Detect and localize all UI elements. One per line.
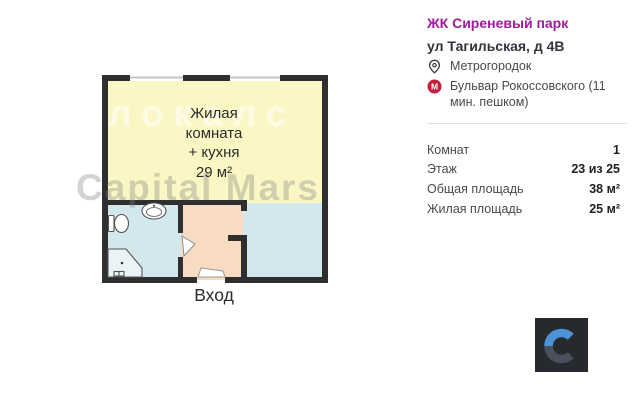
- listing-card: локалс Capital Mars Жилая комната + кухн…: [0, 0, 640, 405]
- row-value: 38 м²: [589, 182, 620, 196]
- svg-text:М: М: [431, 82, 438, 92]
- room-label-line2: комната: [134, 124, 294, 144]
- table-row: Жилая площадь 25 м²: [427, 199, 620, 219]
- row-value: 23 из 25: [571, 162, 620, 176]
- room-label-line3: + кухня: [134, 143, 294, 163]
- table-row: Комнат 1: [427, 140, 620, 160]
- metro-row: М Бульвар Рокоссовского (11 мин. пешком): [427, 79, 622, 110]
- district-row: Метрогородок: [427, 59, 622, 75]
- entrance-label: Вход: [164, 285, 264, 306]
- address-text: ул Тагильская, д 4В: [427, 38, 565, 54]
- divider: [427, 123, 627, 124]
- table-row: Общая площадь 38 м²: [427, 179, 620, 199]
- row-value: 25 м²: [589, 202, 620, 216]
- row-label: Жилая площадь: [427, 202, 522, 216]
- district-text: Метрогородок: [450, 59, 622, 75]
- agency-logo[interactable]: [535, 318, 588, 372]
- room-label: Жилая комната + кухня 29 м²: [134, 104, 294, 182]
- toilet-icon: [109, 216, 115, 232]
- row-value: 1: [613, 143, 620, 157]
- spec-table: Комнат 1 Этаж 23 из 25 Общая площадь 38 …: [427, 140, 620, 218]
- right-room-area: [243, 203, 325, 280]
- metro-station-text: Бульвар Рокоссовского (11 мин. пешком): [450, 79, 622, 110]
- logo-c-icon: [535, 318, 588, 372]
- row-label: Комнат: [427, 143, 469, 157]
- table-row: Этаж 23 из 25: [427, 160, 620, 180]
- metro-icon: М: [427, 79, 442, 94]
- complex-name-link[interactable]: ЖК Сиреневый парк: [427, 15, 568, 31]
- location-pin-icon: [427, 59, 442, 74]
- row-label: Этаж: [427, 162, 457, 176]
- room-label-line1: Жилая: [134, 104, 294, 124]
- row-label: Общая площадь: [427, 182, 524, 196]
- room-area-value: 29 м²: [134, 163, 294, 183]
